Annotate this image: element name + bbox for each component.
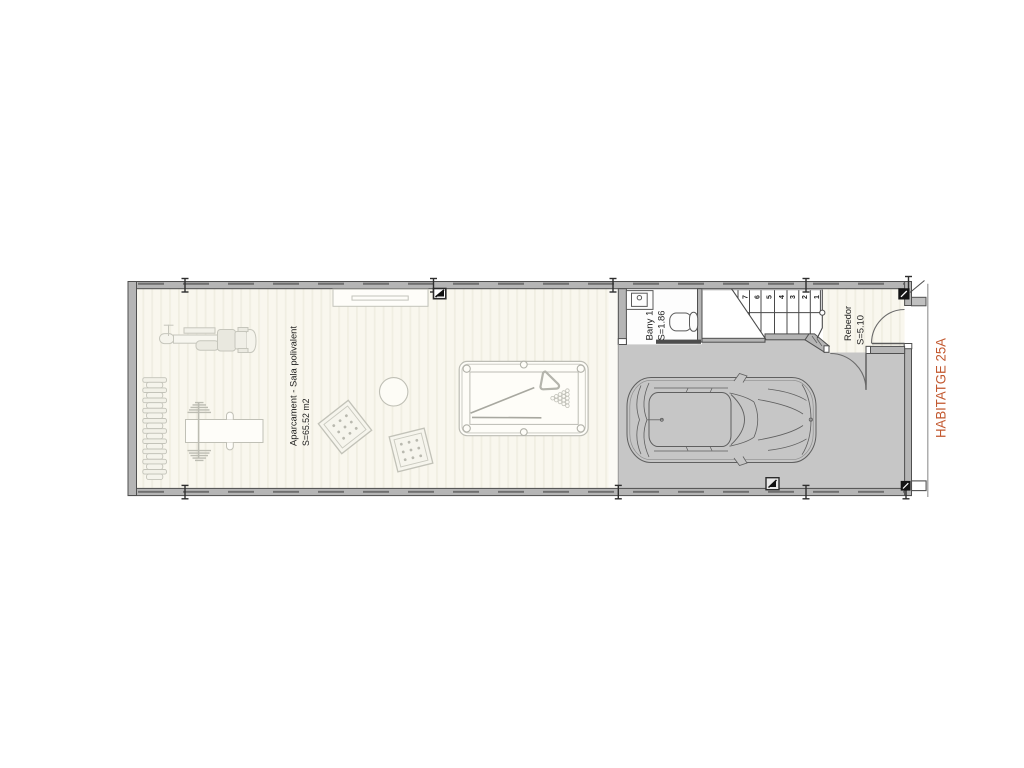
svg-text:4: 4 (779, 295, 786, 299)
svg-text:6: 6 (755, 295, 762, 299)
svg-text:3: 3 (790, 295, 797, 299)
svg-text:HABITATGE 25A: HABITATGE 25A (933, 337, 949, 438)
svg-text:1: 1 (814, 295, 821, 299)
svg-text:Bany 1: Bany 1 (645, 311, 655, 341)
svg-text:2: 2 (802, 295, 809, 299)
svg-text:S=65.52 m2: S=65.52 m2 (301, 399, 311, 447)
svg-text:Aparcament - Sala polivalent: Aparcament - Sala polivalent (289, 326, 299, 446)
svg-text:S=5.10: S=5.10 (856, 315, 866, 345)
svg-text:Rebedor: Rebedor (843, 306, 853, 341)
svg-text:5: 5 (767, 295, 774, 299)
svg-text:S=1.86: S=1.86 (657, 311, 667, 341)
svg-text:7: 7 (743, 295, 750, 299)
